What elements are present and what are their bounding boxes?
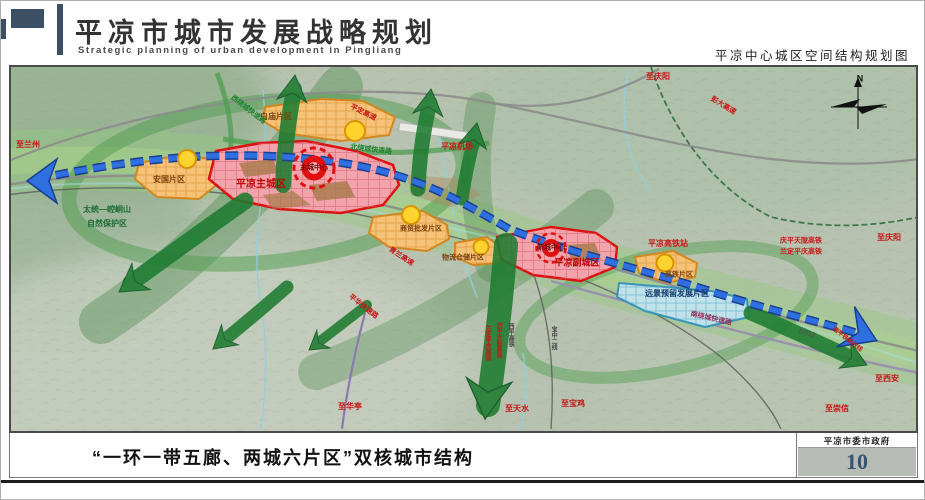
edge-accent [1,19,6,39]
footer-right-box: 平凉市委市政府 10 [796,433,917,477]
bottom-rule [1,480,925,483]
footer-bar: “一环一带五廊、两城六片区”双核城市结构 平凉市委市政府 10 [9,433,918,478]
map-graphic [11,67,916,431]
logo-mark [11,9,44,28]
page-subtitle-en: Strategic planning of urban development … [78,45,402,56]
page-number: 10 [846,449,868,475]
map-caption: 平凉中心城区空间结构规划图 [715,45,910,64]
slide-page: 平凉市城市发展战略规划 Strategic planning of urban … [0,0,925,500]
page-number-box: 10 [798,447,916,476]
org-label: 平凉市委市政府 [797,433,917,447]
title-divider-bar [57,4,63,55]
slide-caption: “一环一带五廊、两城六片区”双核城市结构 [92,444,474,470]
planning-map: 至兰州太统—崆峒山自然保护区安国片区平凉主城区主城中心白庙片区西绕城快速路平定高… [11,67,916,431]
planning-map-panel: 至兰州太统—崆峒山自然保护区安国片区平凉主城区主城中心白庙片区西绕城快速路平定高… [9,65,918,433]
